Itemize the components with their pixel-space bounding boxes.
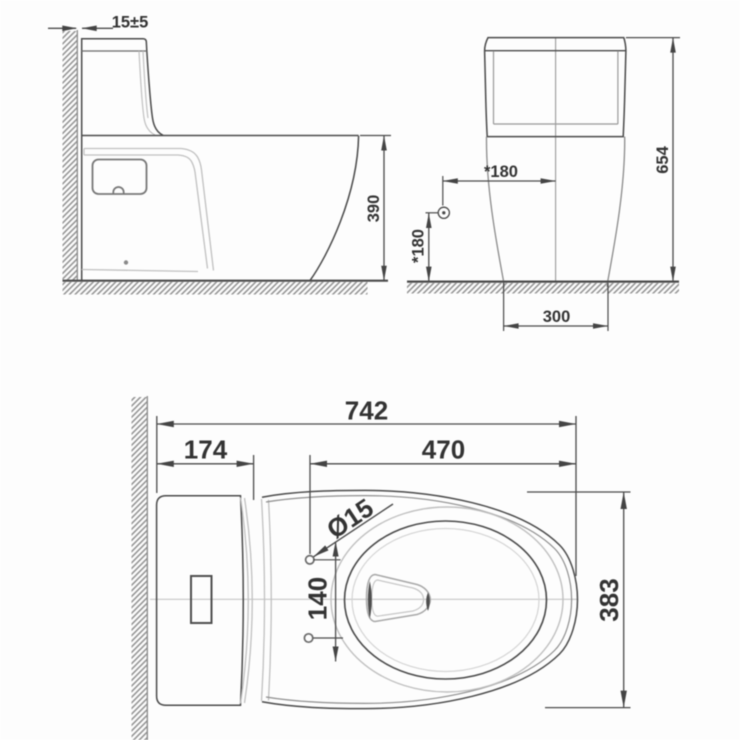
svg-text:470: 470 [422, 435, 465, 465]
svg-text:654: 654 [654, 145, 672, 173]
svg-text:383: 383 [594, 578, 624, 621]
svg-text:390: 390 [365, 195, 383, 223]
svg-text:*180: *180 [484, 163, 518, 181]
svg-text:742: 742 [345, 396, 388, 426]
svg-text:140: 140 [303, 577, 333, 620]
svg-text:*180: *180 [410, 229, 428, 263]
svg-text:300: 300 [543, 308, 571, 326]
svg-text:15±5: 15±5 [112, 14, 149, 32]
svg-text:174: 174 [184, 435, 228, 465]
